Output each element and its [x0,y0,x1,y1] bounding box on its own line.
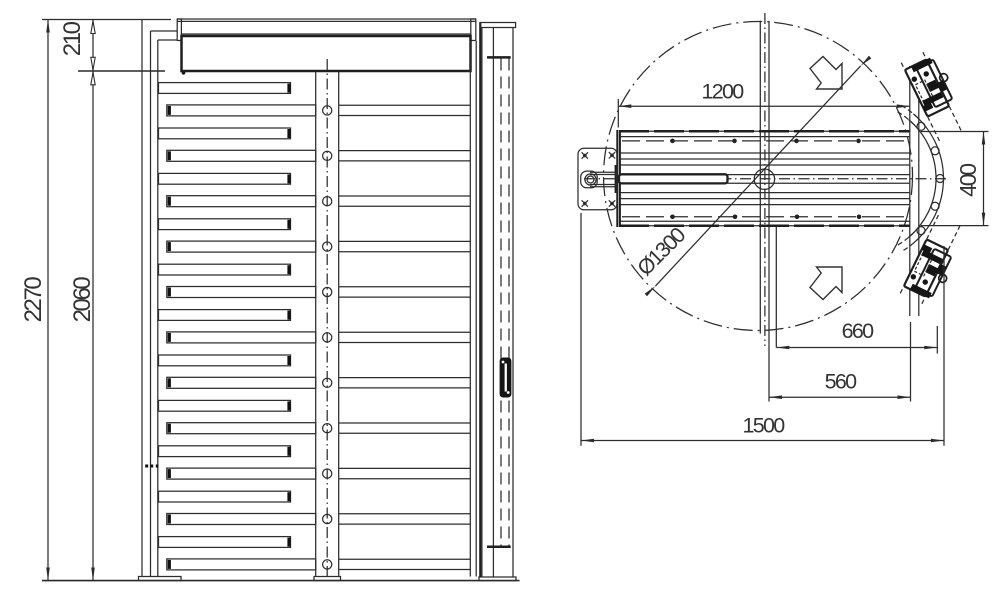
svg-text:2060: 2060 [69,277,96,323]
svg-text:210: 210 [59,21,86,56]
svg-text:2270: 2270 [20,277,47,323]
svg-text:400: 400 [955,164,981,197]
svg-text:560: 560 [825,370,858,394]
svg-text:1500: 1500 [742,414,785,438]
svg-text:660: 660 [842,319,875,343]
svg-text:1200: 1200 [701,79,744,103]
